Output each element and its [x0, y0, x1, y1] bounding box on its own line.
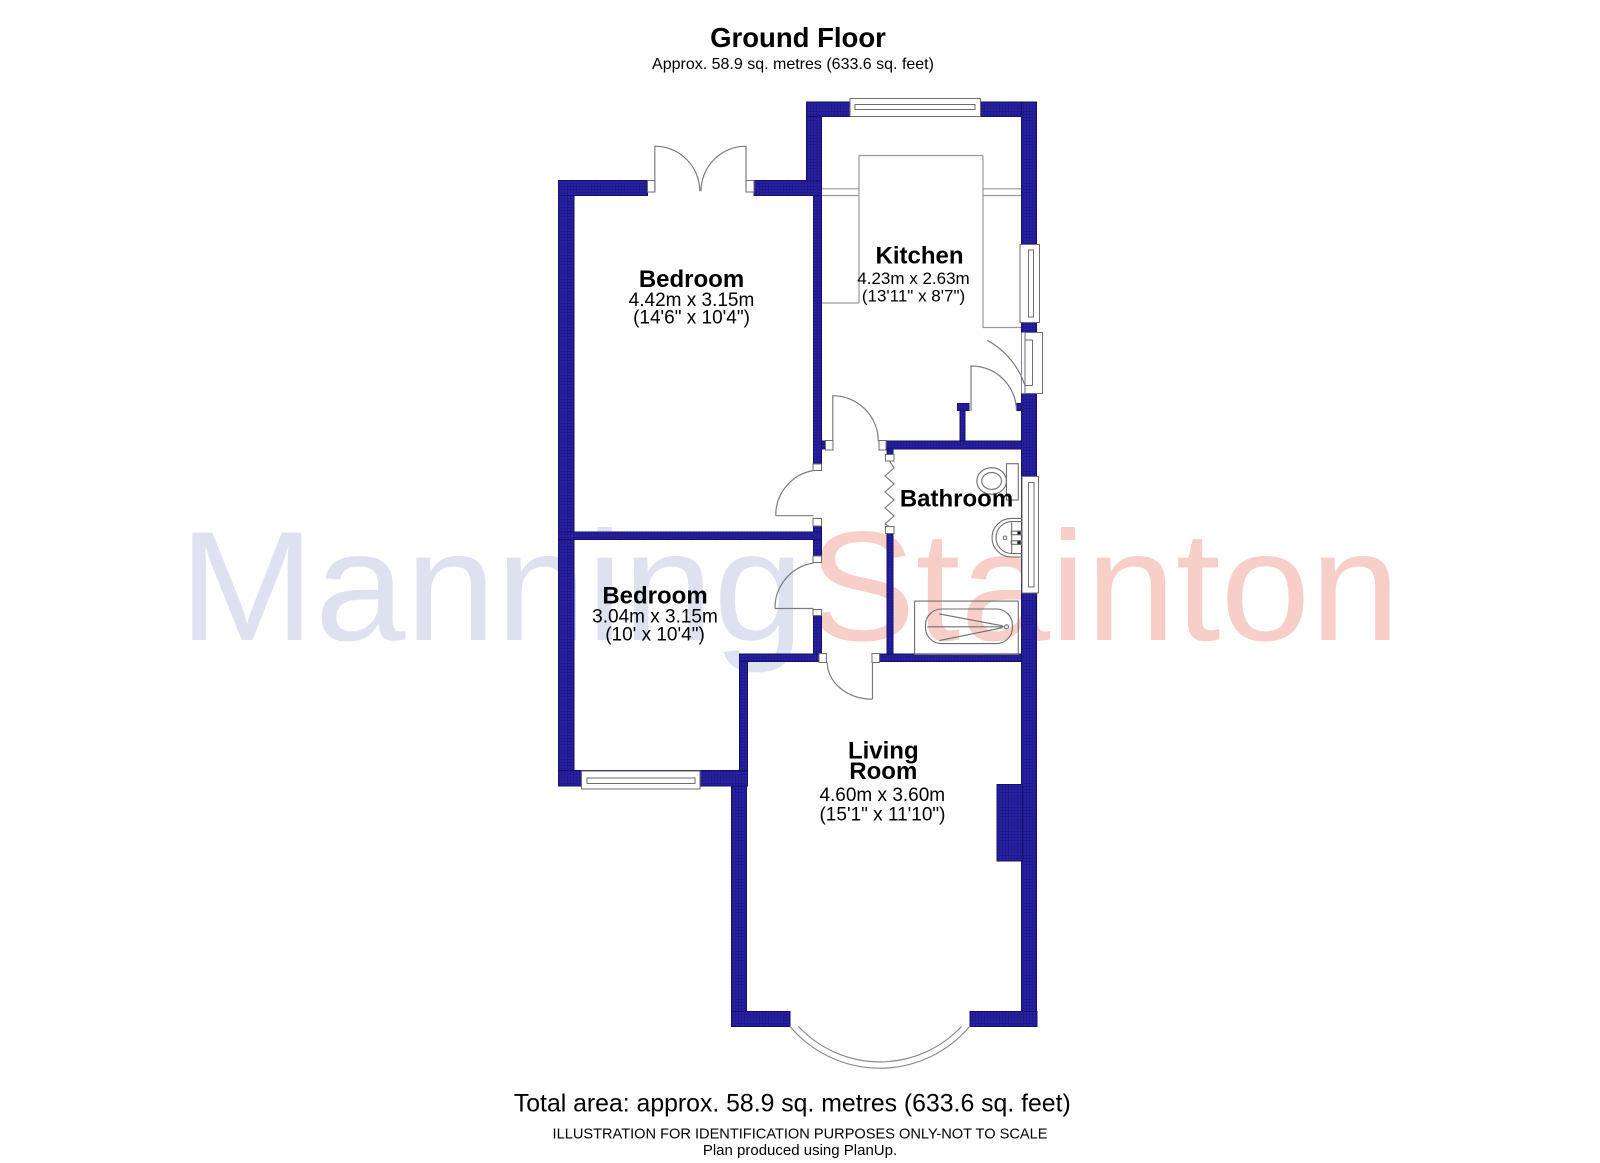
- svg-text:Kitchen: Kitchen: [875, 242, 963, 269]
- svg-text:(14'6" x 10'4"): (14'6" x 10'4"): [633, 308, 750, 329]
- svg-text:Manning: Manning: [179, 500, 804, 674]
- svg-text:(10' x 10'4"): (10' x 10'4"): [605, 625, 705, 646]
- svg-text:Plan produced using PlanUp.: Plan produced using PlanUp.: [703, 1142, 897, 1159]
- svg-text:Stainton: Stainton: [808, 500, 1400, 674]
- svg-text:Bedroom: Bedroom: [639, 266, 744, 293]
- svg-text:Ground Floor: Ground Floor: [710, 22, 886, 53]
- svg-text:4.60m x 3.60m: 4.60m x 3.60m: [819, 785, 945, 806]
- svg-text:Total area: approx. 58.9 sq. m: Total area: approx. 58.9 sq. metres (633…: [514, 1091, 1071, 1118]
- svg-text:Approx. 58.9 sq. metres (633.6: Approx. 58.9 sq. metres (633.6 sq. feet): [652, 56, 934, 73]
- svg-text:ILLUSTRATION FOR IDENTIFICATIO: ILLUSTRATION FOR IDENTIFICATION PURPOSES…: [553, 1127, 1048, 1143]
- svg-text:(13'11" x 8'7"): (13'11" x 8'7"): [862, 287, 965, 306]
- svg-text:Bedroom: Bedroom: [602, 583, 707, 610]
- svg-text:Bathroom: Bathroom: [900, 486, 1013, 513]
- svg-text:(15'1" x 11'10"): (15'1" x 11'10"): [819, 805, 945, 826]
- svg-text:4.23m x 2.63m: 4.23m x 2.63m: [857, 269, 969, 288]
- svg-text:Room: Room: [849, 758, 917, 785]
